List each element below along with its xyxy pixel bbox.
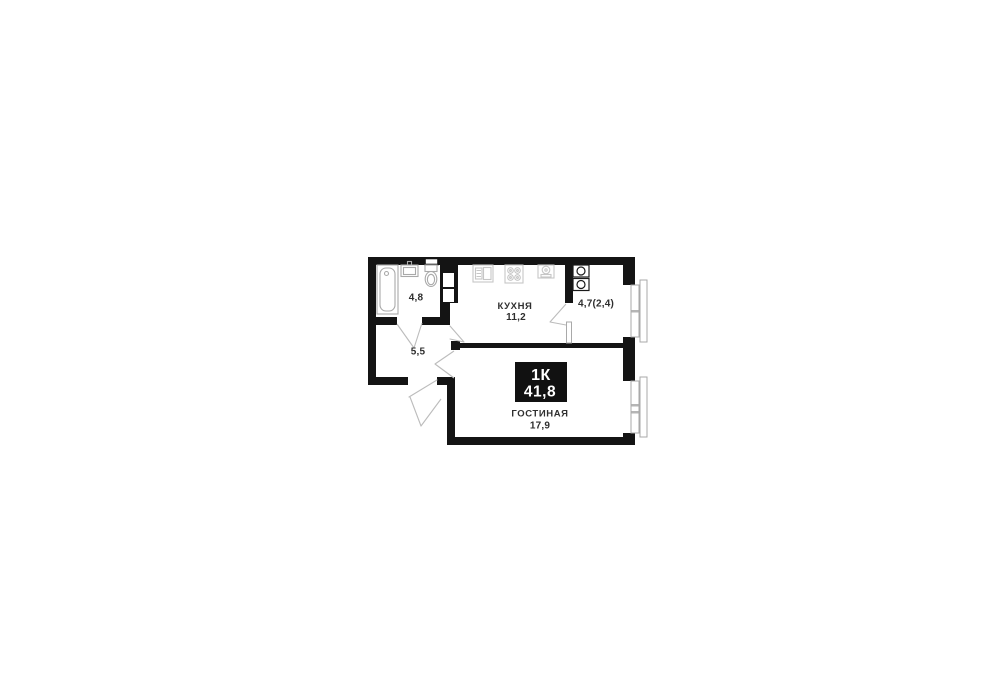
bathroom-fixtures — [377, 262, 437, 315]
living-area-label: 17,9 — [530, 421, 551, 432]
loggia-sidelight — [567, 322, 572, 343]
kitchen-appliances — [473, 265, 554, 283]
window-icon — [631, 377, 647, 437]
wall-right-bottom — [623, 433, 635, 445]
bathroom-area-label: 4,8 — [409, 293, 424, 304]
living-name-label: ГОСТИНАЯ — [511, 409, 568, 420]
door-swing-icon — [410, 397, 441, 426]
vent-shaft-opening — [443, 273, 454, 287]
badge-rooms-label: 1К — [531, 367, 551, 384]
wall-bottom-left — [368, 377, 408, 385]
area-badge: 1К 41,8 — [515, 362, 567, 402]
window-icon — [631, 280, 647, 342]
wall-bottom — [447, 437, 635, 445]
bathtub-icon — [377, 265, 398, 314]
wall-kitchen-loggia — [565, 257, 573, 303]
kitchen-sink-icon — [473, 265, 493, 282]
wall-bath-bottom-right — [422, 317, 450, 325]
hallway-area-label: 5,5 — [411, 347, 426, 358]
washer-box-icon — [573, 279, 589, 291]
wall-bath-bottom-left — [368, 317, 397, 325]
washer-box-icon — [573, 265, 589, 277]
wall-hall-living — [447, 377, 455, 437]
wall-right-mid — [623, 337, 635, 381]
stove-icon — [505, 265, 523, 283]
door-swing-icon — [409, 380, 437, 397]
floor-plan: 4,8 КУХНЯ 11,2 4,7(2,4) 5,5 ГОСТИНАЯ 17,… — [0, 0, 1006, 700]
water-heater-icon — [538, 265, 554, 278]
door-swing-icon — [435, 351, 454, 378]
wall-niche — [425, 259, 438, 265]
toilet-icon — [425, 265, 437, 287]
floor-plan-canvas: 4,8 КУХНЯ 11,2 4,7(2,4) 5,5 ГОСТИНАЯ 17,… — [0, 0, 1006, 700]
wall-right-top — [623, 257, 635, 285]
door-swing-icon — [550, 304, 566, 325]
kitchen-name-label: КУХНЯ — [498, 301, 533, 312]
wall-kitchen-living — [458, 343, 623, 348]
walls — [368, 257, 635, 445]
loggia-units — [573, 265, 589, 291]
vent-shaft-opening — [443, 289, 454, 302]
badge-total-area: 41,8 — [524, 384, 556, 401]
loggia-area-label: 4,7(2,4) — [578, 299, 614, 310]
door-swing-icon — [397, 323, 422, 348]
kitchen-area-label: 11,2 — [506, 312, 526, 323]
door-swing-icon — [450, 326, 464, 342]
